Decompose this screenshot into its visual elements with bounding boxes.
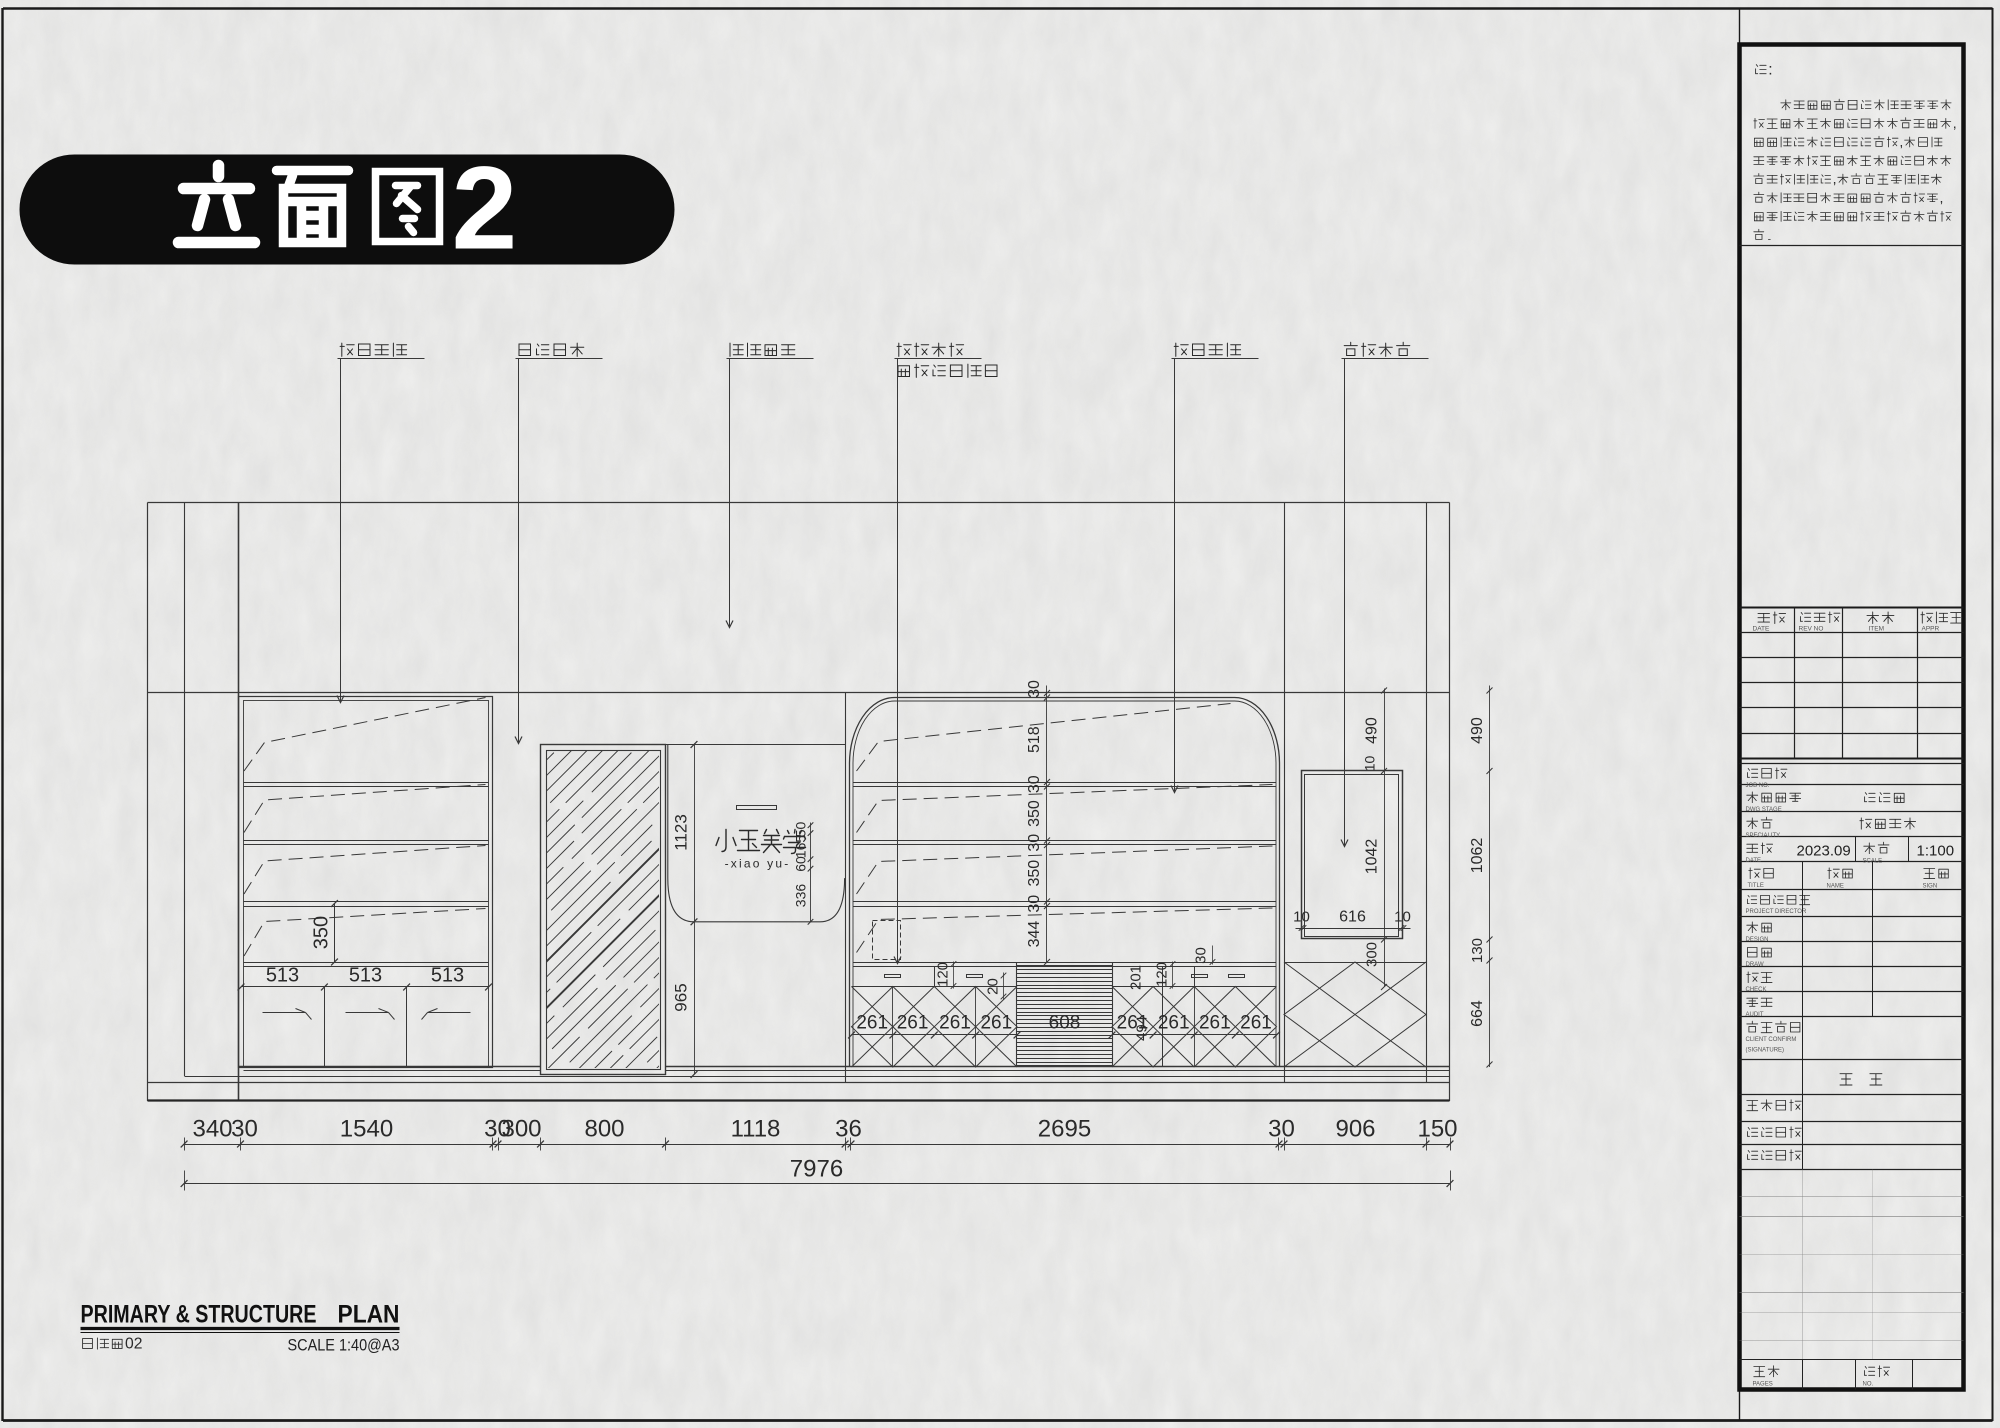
svg-text:518: 518 <box>1026 726 1043 753</box>
svg-text:60: 60 <box>793 856 809 872</box>
svg-text:261: 261 <box>856 1013 888 1034</box>
svg-text:490: 490 <box>1469 717 1486 744</box>
svg-text:120: 120 <box>935 962 952 987</box>
svg-text:REV NO: REV NO <box>1799 626 1824 633</box>
svg-text:664: 664 <box>1469 1000 1486 1027</box>
svg-text:165: 165 <box>793 835 809 859</box>
svg-text:30: 30 <box>1193 947 1210 964</box>
svg-text:7976: 7976 <box>790 1156 843 1183</box>
svg-text:608: 608 <box>1049 1013 1081 1034</box>
svg-text:300: 300 <box>501 1116 541 1143</box>
svg-text:DRAW: DRAW <box>1746 962 1764 968</box>
svg-text:2695: 2695 <box>1038 1116 1091 1143</box>
svg-text:(SIGNATURE): (SIGNATURE) <box>1746 1048 1785 1054</box>
svg-text:261: 261 <box>980 1013 1012 1034</box>
svg-text:1118: 1118 <box>731 1116 781 1143</box>
svg-text:494: 494 <box>1134 1016 1151 1041</box>
svg-text:PAGES: PAGES <box>1753 1382 1773 1388</box>
svg-text:JOB NO.: JOB NO. <box>1746 783 1770 789</box>
svg-text:PROJECT DIRECTOR: PROJECT DIRECTOR <box>1746 909 1807 915</box>
svg-text:120: 120 <box>1154 962 1171 987</box>
svg-text:APPR: APPR <box>1922 626 1940 633</box>
svg-text:SPECIALITY: SPECIALITY <box>1746 833 1781 839</box>
svg-text:30: 30 <box>1026 895 1043 913</box>
svg-text:-xiao yu-: -xiao yu- <box>725 857 791 871</box>
svg-text:2023.09: 2023.09 <box>1797 843 1851 860</box>
svg-text:2: 2 <box>452 143 518 275</box>
svg-text:30: 30 <box>1026 834 1043 852</box>
svg-text::: : <box>1768 62 1772 79</box>
svg-text:513: 513 <box>431 965 464 987</box>
svg-text:30: 30 <box>1026 775 1043 793</box>
svg-text:1062: 1062 <box>1469 838 1486 874</box>
svg-text:,: , <box>1953 115 1957 131</box>
svg-text:TITLE: TITLE <box>1748 883 1764 889</box>
svg-text:36: 36 <box>835 1116 862 1143</box>
svg-text:130: 130 <box>1469 938 1486 963</box>
svg-text:DATE: DATE <box>1753 626 1771 633</box>
svg-text:340: 340 <box>192 1116 232 1143</box>
svg-text:513: 513 <box>266 965 299 987</box>
svg-text:30: 30 <box>1268 1116 1295 1143</box>
svg-text:30: 30 <box>1026 680 1043 698</box>
svg-text:1:100: 1:100 <box>1917 843 1955 860</box>
svg-text:350: 350 <box>1026 860 1043 887</box>
svg-text:NO.: NO. <box>1863 1382 1874 1388</box>
svg-text:,: , <box>1899 134 1903 150</box>
svg-text:DESIGN: DESIGN <box>1746 937 1769 943</box>
svg-text:20: 20 <box>985 978 1002 995</box>
svg-text:201: 201 <box>1128 965 1145 990</box>
svg-text:261: 261 <box>1158 1013 1190 1034</box>
svg-text:150: 150 <box>1417 1116 1457 1143</box>
svg-text:1123: 1123 <box>672 814 691 851</box>
svg-text:300: 300 <box>1364 942 1381 967</box>
svg-text:,: , <box>1940 189 1944 205</box>
svg-text:336: 336 <box>793 884 809 908</box>
svg-text:SIGN: SIGN <box>1923 884 1938 890</box>
svg-text:NAME: NAME <box>1827 884 1844 890</box>
svg-text:1042: 1042 <box>1364 839 1381 875</box>
svg-text:02: 02 <box>125 1336 142 1353</box>
svg-text:AUDIT: AUDIT <box>1746 1012 1764 1018</box>
svg-text:261: 261 <box>897 1013 929 1034</box>
svg-text:DATE: DATE <box>1746 858 1762 864</box>
svg-text:490: 490 <box>1364 717 1381 744</box>
svg-text:DWG STAGE: DWG STAGE <box>1746 807 1782 813</box>
svg-text:350: 350 <box>1026 800 1043 827</box>
svg-text:1540: 1540 <box>340 1116 393 1143</box>
svg-text:10: 10 <box>1362 756 1378 772</box>
svg-text:,: , <box>1833 171 1837 187</box>
svg-text:513: 513 <box>349 965 382 987</box>
svg-text:CLIENT CONFIRM: CLIENT CONFIRM <box>1746 1037 1797 1043</box>
svg-text:800: 800 <box>584 1116 624 1143</box>
svg-text:261: 261 <box>1240 1013 1272 1034</box>
svg-text:965: 965 <box>672 983 691 1011</box>
svg-text:10: 10 <box>1394 909 1411 926</box>
svg-text:616: 616 <box>1339 909 1366 926</box>
svg-text:906: 906 <box>1335 1116 1375 1143</box>
svg-text:10: 10 <box>1293 909 1310 926</box>
svg-text:350: 350 <box>311 916 333 949</box>
svg-text:PLAN: PLAN <box>338 1301 400 1329</box>
svg-text:ITEM: ITEM <box>1869 626 1885 633</box>
svg-text:261: 261 <box>939 1013 971 1034</box>
svg-text:SCALE 1:40@A3: SCALE 1:40@A3 <box>288 1336 400 1355</box>
svg-text:30: 30 <box>231 1116 258 1143</box>
svg-text:261: 261 <box>1199 1013 1231 1034</box>
svg-text:CHECK: CHECK <box>1746 987 1767 993</box>
svg-text:PRIMARY & STRUCTURE: PRIMARY & STRUCTURE <box>81 1301 317 1329</box>
svg-text:344: 344 <box>1026 921 1043 948</box>
